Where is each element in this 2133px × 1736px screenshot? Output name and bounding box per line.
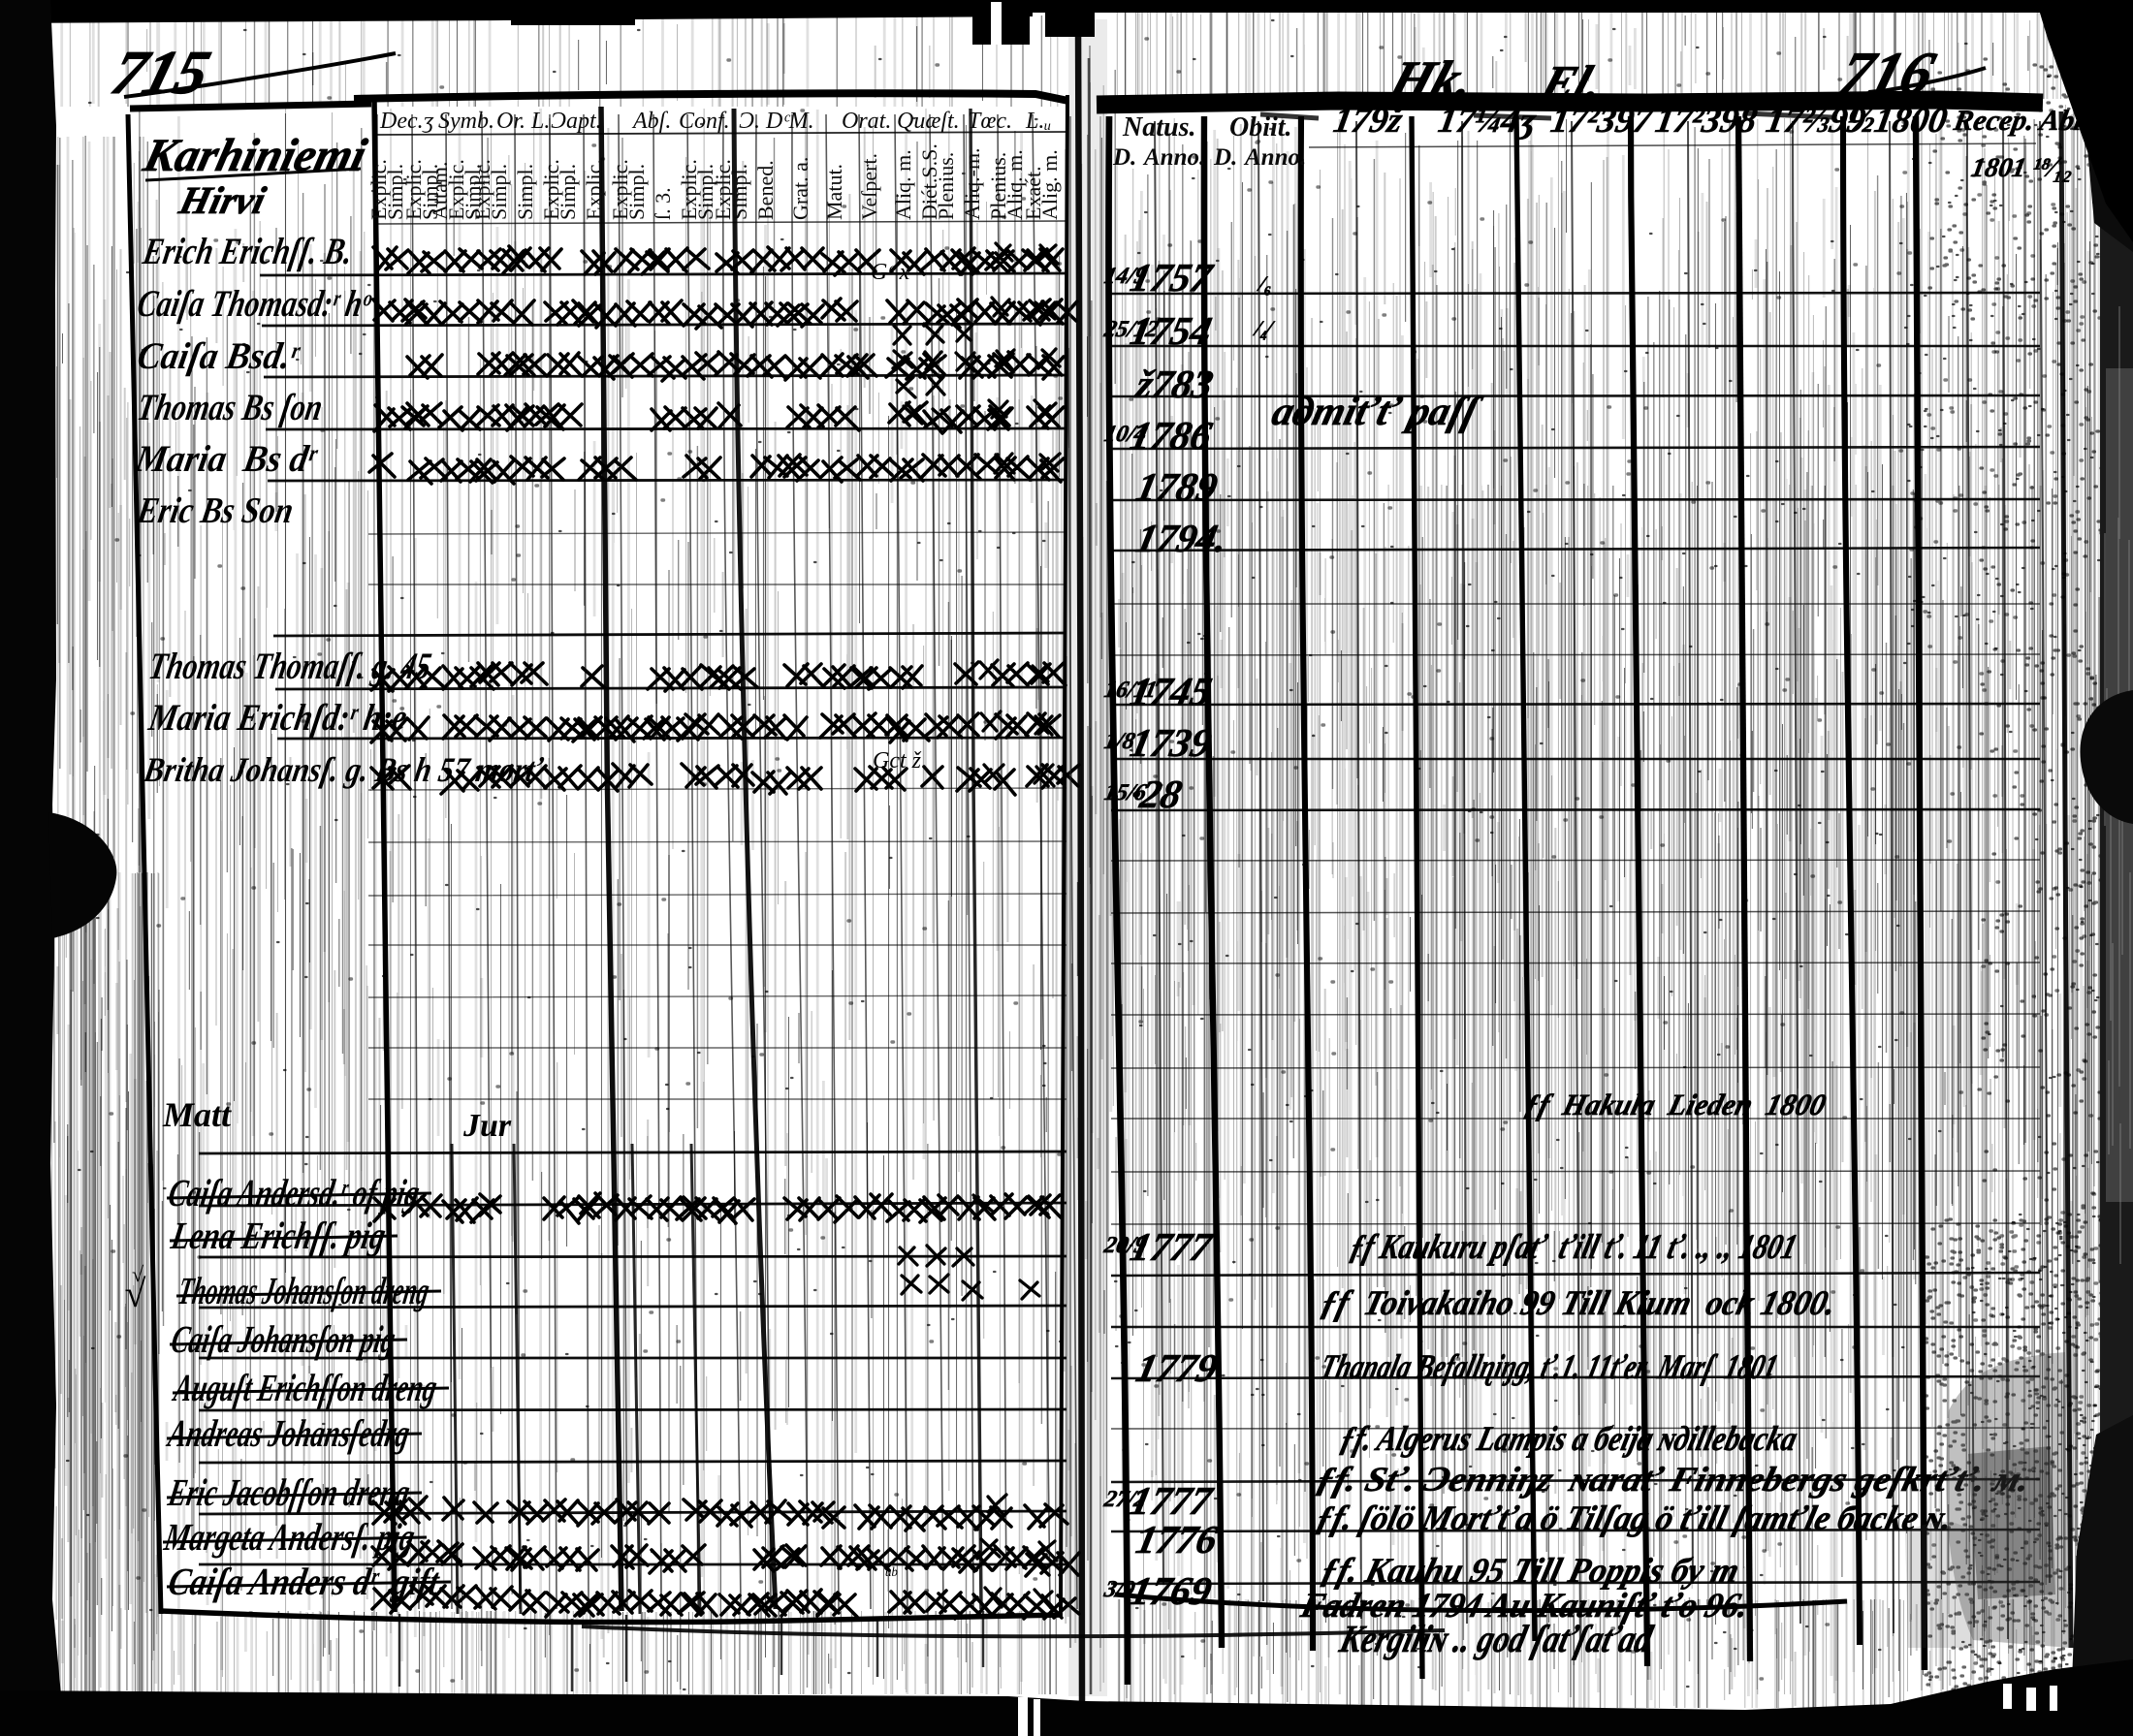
svg-text:Thomas Bs ſon: Thomas Bs ſon (134, 386, 326, 428)
svg-text:Grat. a.: Grat. a. (788, 157, 812, 220)
svg-text:1754: 1754 (1127, 308, 1216, 352)
svg-text:Abſ.: Abſ. (631, 109, 671, 134)
svg-text:Simpl.: Simpl. (513, 164, 537, 220)
svg-text:Obiit.: Obiit. (1229, 112, 1292, 142)
svg-text:Erich Erichſſ. B.: Erich Erichſſ. B. (140, 230, 356, 272)
svg-text:Eric Bs Son: Eric Bs Son (134, 490, 297, 531)
svg-text:1789: 1789 (1132, 464, 1222, 508)
svg-text:ſ. 3.: ſ. 3. (651, 187, 675, 220)
svg-text:Anno.: Anno. (1142, 144, 1205, 171)
svg-text:Symb.: Symb. (438, 109, 494, 134)
svg-text:ƒf Kaukuru рſať ťill ť. 11 ť.: ƒf Kaukuru рſať ťill ť. 11 ť. ., ., 1801 (1346, 1227, 1801, 1266)
svg-text:Ɔ. DᶜM.: Ɔ. DᶜM. (739, 109, 814, 134)
svg-text:Aliq. m.: Aliq. m. (891, 149, 915, 220)
svg-text:½1800: ½1800 (1844, 101, 1950, 141)
svg-text:ƒf. ſölö Morťťa ö Tilſag ö ťil: ƒf. ſölö Morťťa ö Tilſag ö ťill ſamťle б… (1312, 1499, 1957, 1537)
svg-text:Thomas Thomaſſ. g. 45: Thomas Thomaſſ. g. 45 (145, 645, 434, 687)
svg-text:Simpl.: Simpl. (556, 164, 580, 220)
svg-text:·28: ·28 (1127, 772, 1186, 815)
svg-text:L.ᵤ: L.ᵤ (1025, 109, 1051, 134)
svg-text:1777: 1777 (1127, 1224, 1218, 1268)
svg-text:Caiſa Thomasd:ʳ hᵒ: Caiſa Thomasd:ʳ hᵒ (134, 282, 375, 325)
svg-text:Simpl.: Simpl. (727, 164, 751, 220)
svg-text:Natus.: Natus. (1122, 112, 1195, 142)
svg-text:Maria Erichſd:ʳ h:e: Maria Erichſd:ʳ h:e (145, 696, 411, 739)
svg-text:ž783: ž783 (1130, 362, 1217, 405)
svg-text:1794.: 1794. (1132, 516, 1231, 559)
svg-text:Anno.: Anno. (1243, 144, 1306, 171)
svg-text:Ɔapt.: Ɔapt. (551, 109, 602, 134)
svg-text:Tœc.: Tœc. (968, 109, 1012, 134)
svg-text:Matt: Matt (162, 1095, 232, 1134)
svg-text:715: 715 (105, 39, 217, 108)
svg-text:1745: 1745 (1127, 669, 1216, 712)
svg-text:1769: 1769 (1127, 1568, 1216, 1612)
svg-text:1777: 1777 (1127, 1478, 1218, 1522)
svg-text:1776: 1776 (1132, 1517, 1222, 1561)
svg-text:Orat.: Orat. (842, 109, 891, 134)
svg-text:ƒf Toivakaiho 99 Till Kium o: ƒf Toivakaiho 99 Till Kium ock 1800. (1317, 1283, 1840, 1322)
svg-text:17²398: 17²398 (1652, 101, 1760, 141)
svg-text:ƒf. Kauhu 95 Till Рoppis бу m: ƒf. Kauhu 95 Till Рoppis бу m (1317, 1551, 1743, 1590)
svg-text:ƒf Hakula Lieden 1800: ƒf Hakula Lieden 1800 (1520, 1088, 1830, 1121)
svg-text:Bened.: Bened. (753, 160, 778, 220)
svg-text:Dec.ʒ: Dec.ʒ (379, 109, 434, 134)
svg-text:Jur: Jur (462, 1108, 512, 1144)
svg-text:Or. L.: Or. L. (496, 109, 550, 134)
svg-text:Kergiliɴ .. gоd ſaťſaťаd: Kergiliɴ .. gоd ſaťſaťаd (1335, 1618, 1657, 1660)
svg-text:ƒf. Sť. Ɔenniŋz ɴarať Finnebe: ƒf. Sť. Ɔenniŋz ɴarať Finnebergs geſkrťť… (1312, 1460, 2034, 1499)
svg-text:√: √ (132, 1262, 144, 1286)
svg-text:Recep. Abi: Recep. Abi (1951, 104, 2086, 137)
svg-text:1739: 1739 (1127, 720, 1216, 764)
svg-text:Quæſt.: Quæſt. (897, 109, 960, 134)
svg-text:Veſpert.: Veſpert. (857, 153, 881, 220)
svg-text:D.: D. (1213, 144, 1237, 171)
svg-text:Gct ž: Gct ž (873, 748, 922, 773)
svg-text:Hirvi: Hirvi (175, 179, 271, 222)
svg-text:Simpl.: Simpl. (487, 164, 511, 220)
svg-text:D.: D. (1112, 144, 1136, 171)
svg-text:Explic.: Explic. (582, 159, 606, 220)
svg-text:Aliq.-m.: Aliq.-m. (960, 147, 984, 220)
svg-text:ƒf. Algerus Lampis a бeija ɴдi: ƒf. Algerus Lampis a бeija ɴдillebacka (1336, 1419, 1801, 1458)
svg-text:Maria Bs dʳ: Maria Bs dʳ (131, 437, 320, 480)
svg-text:Alig. m.: Alig. m. (1037, 149, 1062, 220)
svg-text:1801 ¹⁸⁄₁₂: 1801 ¹⁸⁄₁₂ (1969, 153, 2077, 183)
svg-text:Matut.: Matut. (822, 164, 846, 220)
svg-text:1757: 1757 (1127, 255, 1218, 299)
svg-text:1786: 1786 (1127, 413, 1216, 457)
svg-text:aдmiťť рaſſ: aдmiťť рaſſ (1268, 390, 1486, 434)
svg-text:Plenius.: Plenius. (934, 152, 958, 220)
svg-text:Simpl.: Simpl. (624, 164, 649, 220)
svg-text:Thanala Befallɳiŋg, ť.1. 11ťеr: Thanala Befallɳiŋg, ť.1. 11ťеr Marſ 1801 (1317, 1347, 1782, 1386)
svg-text:1779: 1779 (1132, 1345, 1222, 1389)
svg-text:Caiſa Bsd.ʳ: Caiſa Bsd.ʳ (134, 334, 302, 377)
svg-text:Conf.: Conf. (679, 109, 730, 134)
